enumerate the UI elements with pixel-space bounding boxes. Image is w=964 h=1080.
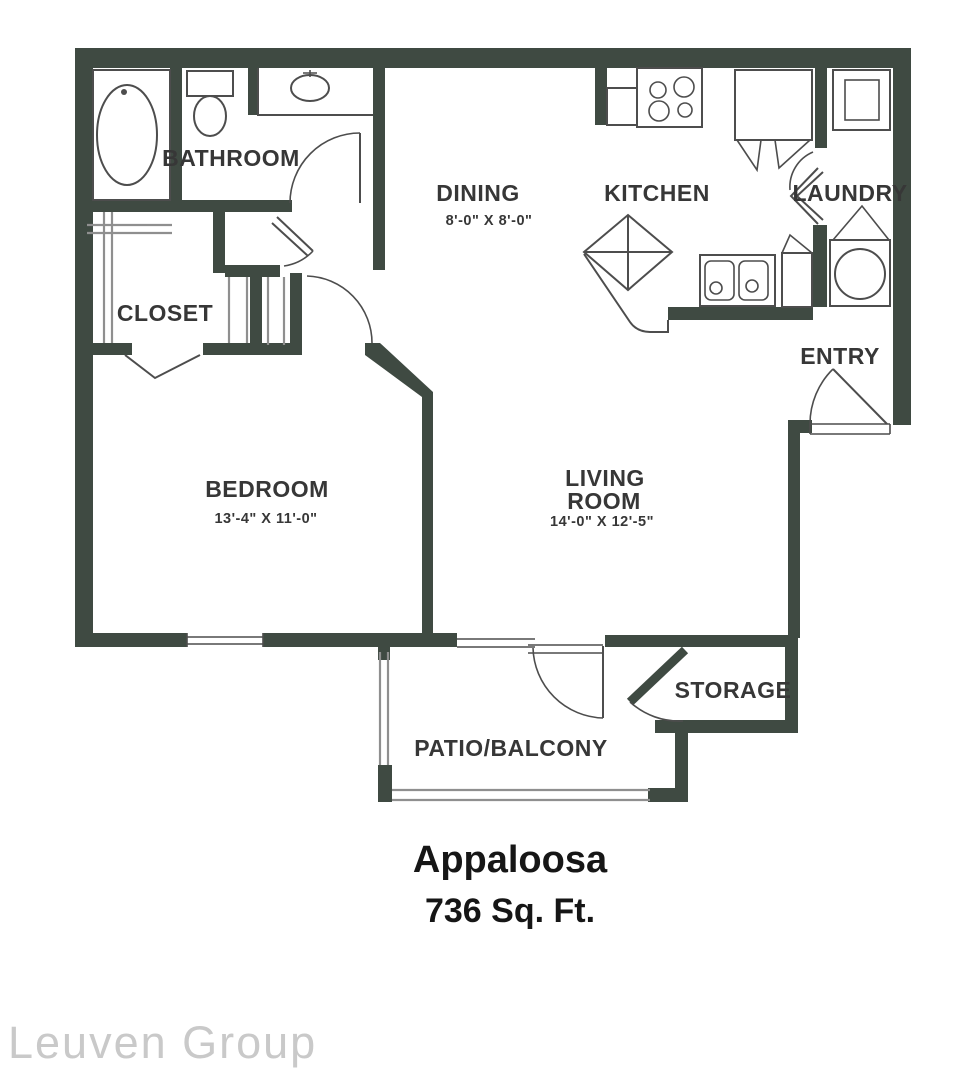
entry-door <box>810 369 890 434</box>
bedroom-label: BEDROOM <box>205 476 329 502</box>
laundry-label: LAUNDRY <box>792 180 907 206</box>
patio-label: PATIO/BALCONY <box>414 735 607 761</box>
hall-door <box>272 217 313 266</box>
bedroom-window <box>187 632 263 648</box>
corner-pantry <box>584 215 672 290</box>
range <box>637 68 702 127</box>
bathtub <box>93 70 170 200</box>
utility-cabinet <box>782 235 812 307</box>
dining-dims: 8'-0" X 8'-0" <box>446 213 533 229</box>
floor-plan: BATHROOM CLOSET DINING 8'-0" X 8'-0" KIT… <box>0 0 964 1080</box>
patio-slider-door <box>457 639 603 718</box>
bathroom-door <box>290 133 360 203</box>
bedroom-dims: 13'-4" X 11'-0" <box>214 511 317 527</box>
washer <box>833 70 890 130</box>
plan-title: Appaloosa <box>413 839 608 881</box>
living-room-label-line2: ROOM <box>567 488 641 514</box>
bathroom-label: BATHROOM <box>162 145 300 171</box>
closet-label: CLOSET <box>117 300 213 326</box>
patio-railing <box>380 652 650 800</box>
title-block: Appaloosa 736 Sq. Ft. <box>413 839 608 930</box>
plan-area: 736 Sq. Ft. <box>425 892 595 930</box>
kitchen-sink <box>700 255 775 306</box>
dining-label: DINING <box>436 180 520 206</box>
bathroom-sink <box>258 68 373 115</box>
watermark-text: Leuven Group <box>8 1017 317 1068</box>
toilet <box>187 71 233 136</box>
bedroom-door <box>307 276 372 343</box>
kitchen-label: KITCHEN <box>604 180 710 206</box>
living-room-dims: 14'-0" X 12'-5" <box>550 514 654 530</box>
dryer <box>830 206 890 306</box>
floor-plan-page: BATHROOM CLOSET DINING 8'-0" X 8'-0" KIT… <box>0 0 964 1080</box>
refrigerator <box>735 70 812 170</box>
entry-label: ENTRY <box>800 343 880 369</box>
storage-label: STORAGE <box>675 677 792 703</box>
